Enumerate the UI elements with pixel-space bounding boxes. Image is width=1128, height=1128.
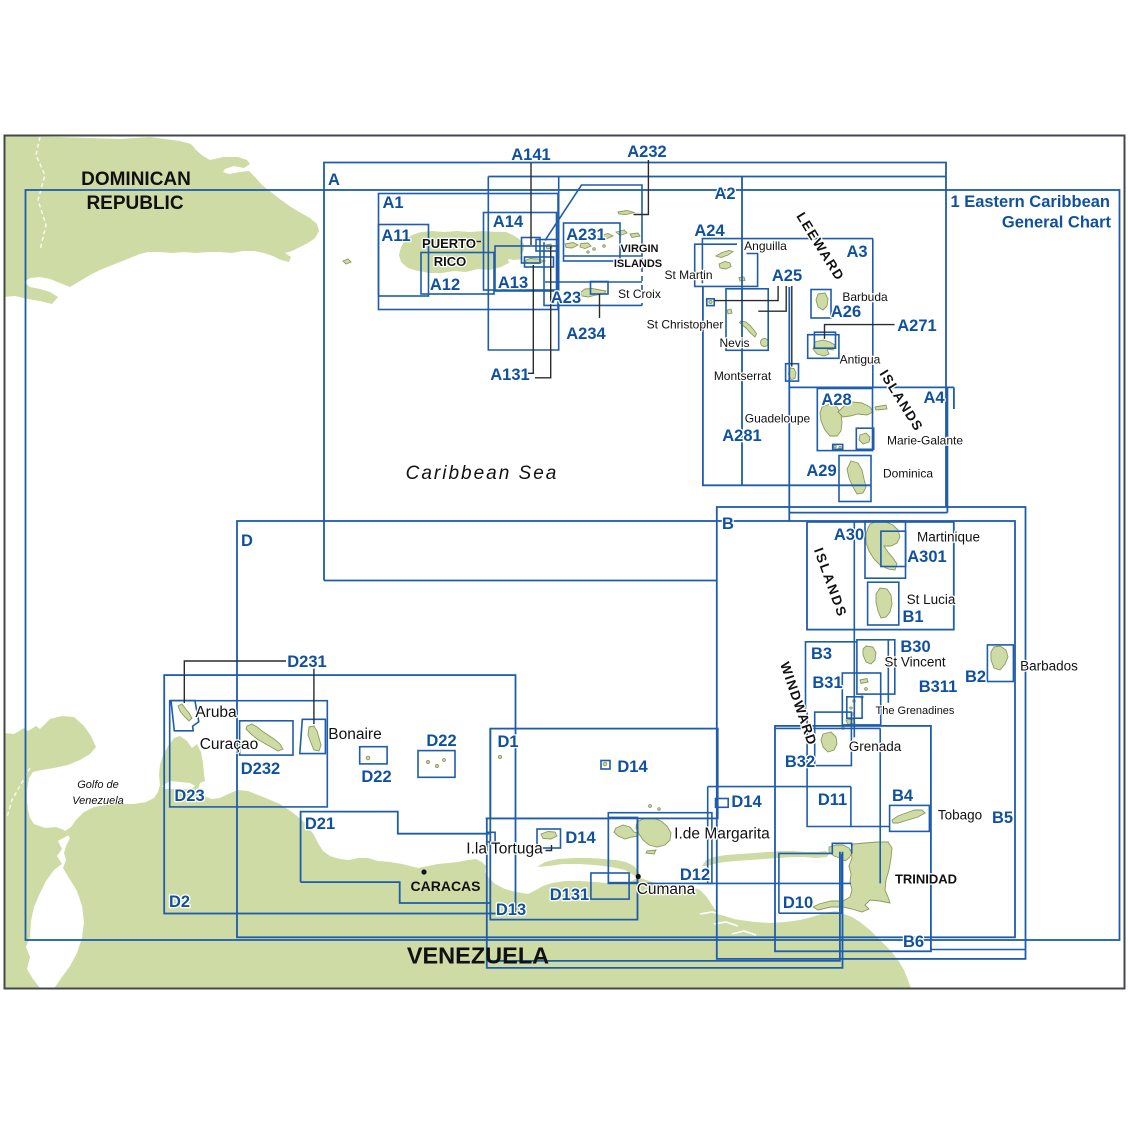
svg-text:A2: A2 (714, 185, 735, 203)
svg-text:D22: D22 (361, 768, 391, 786)
svg-text:D2: D2 (169, 893, 190, 911)
svg-text:Marie-Galante: Marie-Galante (887, 433, 963, 447)
svg-text:A30: A30 (834, 526, 864, 544)
svg-text:I.de Margarita: I.de Margarita (674, 826, 770, 843)
svg-text:A281: A281 (722, 427, 761, 445)
svg-text:VIRGIN: VIRGIN (621, 243, 659, 255)
svg-text:St Vincent: St Vincent (884, 654, 946, 669)
svg-text:B30: B30 (900, 638, 930, 656)
svg-text:General Chart: General Chart (1002, 214, 1112, 232)
svg-text:Martinique: Martinique (917, 529, 980, 544)
svg-text:PUERTO: PUERTO (422, 236, 476, 251)
svg-text:A28: A28 (821, 391, 851, 409)
svg-text:Guadeloupe: Guadeloupe (745, 411, 811, 425)
svg-text:A23: A23 (551, 289, 581, 307)
svg-text:Cumana: Cumana (637, 881, 696, 898)
svg-text:D14: D14 (565, 829, 596, 847)
svg-text:Golfo de: Golfo de (77, 779, 119, 791)
svg-text:A25: A25 (772, 267, 802, 285)
svg-text:1 Eastern Caribbean: 1 Eastern Caribbean (950, 193, 1110, 211)
svg-text:St Croix: St Croix (618, 287, 661, 301)
svg-text:B5: B5 (992, 809, 1013, 827)
svg-text:A131: A131 (490, 366, 529, 384)
svg-text:I.la Tortuga: I.la Tortuga (466, 841, 543, 858)
svg-text:Tobago: Tobago (938, 807, 982, 822)
svg-text:A: A (328, 171, 340, 189)
svg-text:D13: D13 (496, 901, 526, 919)
svg-text:D22: D22 (426, 732, 456, 750)
svg-text:B6: B6 (903, 933, 924, 951)
svg-text:A4: A4 (923, 389, 945, 407)
svg-text:Barbados: Barbados (1020, 658, 1078, 673)
svg-text:A234: A234 (566, 325, 606, 343)
svg-text:A13: A13 (498, 274, 528, 292)
svg-text:B1: B1 (902, 608, 923, 626)
svg-text:St Christopher: St Christopher (647, 317, 724, 331)
svg-text:RICO: RICO (434, 254, 467, 269)
svg-text:A231: A231 (566, 226, 605, 244)
svg-text:The Grenadines: The Grenadines (876, 705, 955, 717)
svg-text:A12: A12 (430, 276, 460, 294)
svg-text:Nevis: Nevis (719, 336, 749, 350)
svg-text:A301: A301 (907, 548, 946, 566)
svg-text:Grenada: Grenada (849, 739, 902, 754)
svg-text:D10: D10 (783, 894, 813, 912)
svg-text:Venezuela: Venezuela (72, 795, 124, 807)
svg-text:A271: A271 (897, 317, 936, 335)
svg-text:St Martin: St Martin (664, 268, 712, 282)
svg-text:A14: A14 (493, 213, 524, 231)
svg-text:B3: B3 (811, 645, 832, 663)
svg-text:A3: A3 (846, 243, 867, 261)
svg-text:Caribbean Sea: Caribbean Sea (406, 463, 559, 484)
svg-text:Montserrat: Montserrat (714, 369, 772, 383)
svg-text:D231: D231 (287, 653, 326, 671)
svg-text:B2: B2 (965, 668, 986, 686)
svg-text:A11: A11 (381, 227, 410, 245)
svg-text:D131: D131 (550, 886, 589, 904)
svg-text:D14: D14 (617, 758, 648, 776)
svg-text:B4: B4 (892, 787, 914, 805)
svg-text:A232: A232 (627, 143, 666, 161)
svg-text:B31: B31 (812, 674, 842, 692)
svg-text:Aruba: Aruba (195, 704, 237, 721)
svg-text:DOMINICAN: DOMINICAN (81, 169, 191, 190)
svg-text:Antigua: Antigua (840, 352, 881, 366)
svg-text:D11: D11 (818, 791, 847, 809)
svg-text:D21: D21 (305, 815, 335, 833)
svg-text:D14: D14 (731, 793, 762, 811)
svg-text:CARACAS: CARACAS (411, 878, 481, 894)
svg-text:St Lucia: St Lucia (907, 592, 956, 607)
svg-text:B32: B32 (785, 753, 815, 771)
svg-text:D232: D232 (241, 760, 280, 778)
svg-text:A1: A1 (382, 194, 403, 212)
svg-text:D1: D1 (497, 733, 518, 751)
svg-text:A24: A24 (694, 222, 725, 240)
svg-text:B: B (722, 515, 734, 533)
svg-text:Bonaire: Bonaire (328, 726, 381, 743)
svg-text:Barbuda: Barbuda (842, 290, 888, 304)
svg-text:A26: A26 (831, 303, 861, 321)
svg-text:B311: B311 (919, 678, 958, 696)
svg-text:D23: D23 (174, 787, 204, 805)
svg-text:TRINIDAD: TRINIDAD (895, 872, 957, 887)
svg-text:ISLANDS: ISLANDS (614, 258, 662, 270)
svg-text:A29: A29 (806, 462, 836, 480)
svg-text:Curaçao: Curaçao (200, 736, 259, 753)
svg-text:A141: A141 (511, 146, 550, 164)
svg-text:REPUBLIC: REPUBLIC (86, 193, 183, 214)
svg-text:Anguilla: Anguilla (744, 239, 787, 253)
svg-text:D: D (241, 532, 253, 550)
svg-text:Dominica: Dominica (883, 466, 933, 480)
svg-text:VENEZUELA: VENEZUELA (407, 943, 549, 969)
